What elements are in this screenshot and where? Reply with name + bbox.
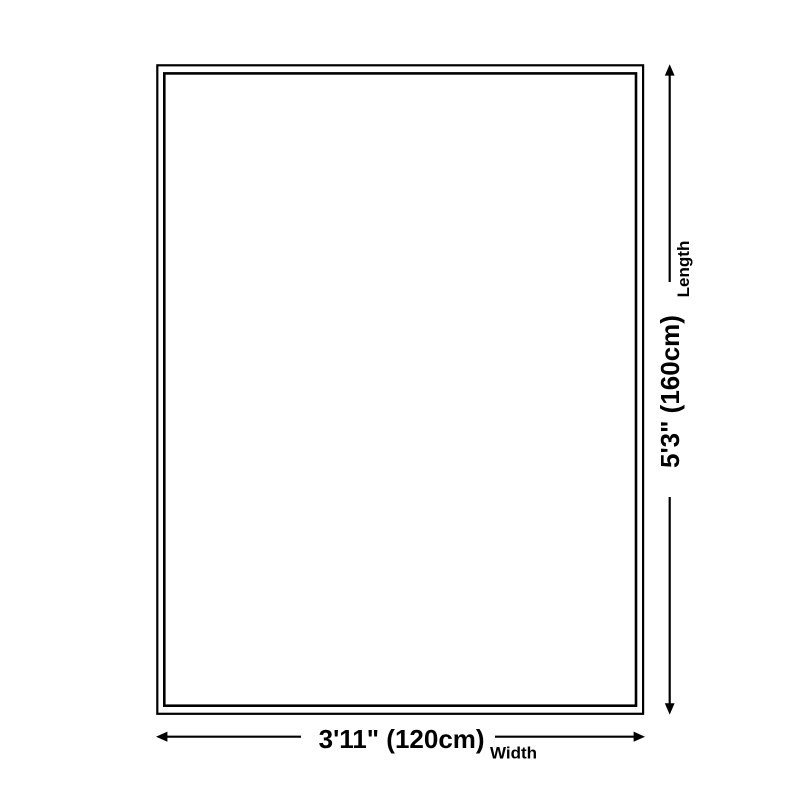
svg-text:Width: Width [490,744,537,763]
svg-text:3'11" (120cm): 3'11" (120cm) [319,724,485,754]
svg-text:Length: Length [674,241,693,298]
svg-text:5'3" (160cm): 5'3" (160cm) [655,315,685,468]
